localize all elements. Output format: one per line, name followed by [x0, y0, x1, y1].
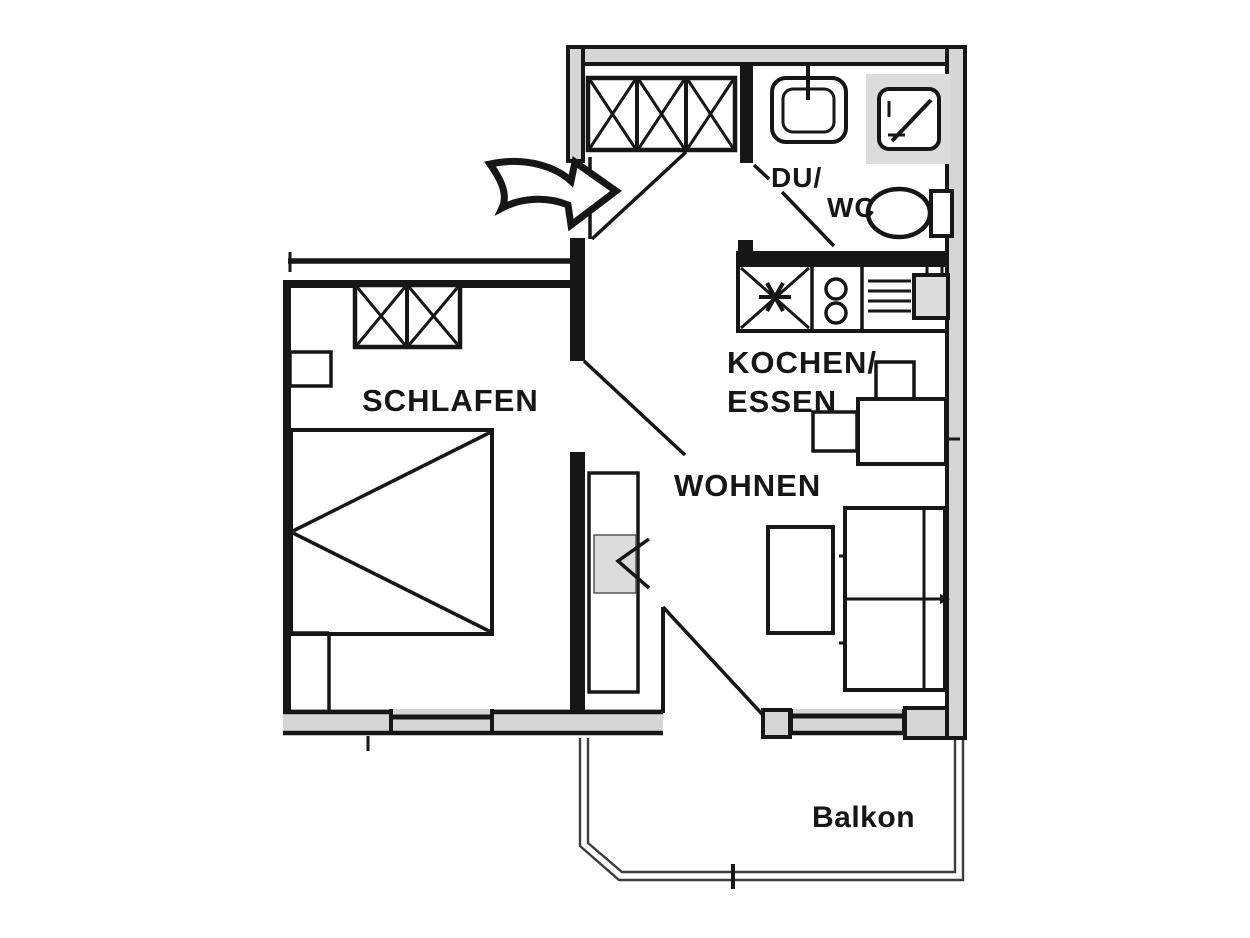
kitchen-label-line1: KOCHEN/ [727, 345, 877, 380]
living-room-label: WOHNEN [674, 468, 821, 503]
hall-wardrobe [588, 78, 735, 150]
sink-basin [914, 275, 948, 318]
bathroom-label-line1: DU/ [771, 162, 822, 193]
kitchen-counter [738, 265, 948, 331]
bedroom-dresser [291, 633, 329, 710]
dining-chair [876, 362, 914, 399]
balcony-door [663, 607, 762, 714]
balcony-door-post [763, 710, 790, 737]
washbasin-icon [772, 62, 846, 142]
dining-table [858, 399, 946, 464]
tv-screen [594, 535, 636, 593]
upper-left-wall [568, 47, 583, 161]
bathroom-label-line2: WC [827, 192, 876, 223]
divider-wall-lower [570, 452, 585, 711]
tv-sideboard [589, 473, 649, 692]
toilet-icon [868, 189, 952, 237]
bedroom-label: SCHLAFEN [362, 383, 539, 418]
top-wall [568, 47, 964, 64]
bedroom-wardrobe [355, 285, 460, 347]
nightstand [290, 352, 331, 386]
kitchen-label-line2: ESSEN [727, 384, 837, 419]
entry-arrow-icon [490, 161, 616, 225]
sofa-icon [839, 508, 950, 690]
bathroom-kitchen-wall [736, 251, 948, 263]
bottom-exterior-wall [283, 708, 964, 751]
balcony-label: Balkon [812, 801, 915, 834]
floor-plan-drawing: SCHLAFEN WOHNEN KOCHEN/ ESSEN DU/ WC Bal… [0, 0, 1250, 938]
bedroom-door-swing [584, 361, 685, 455]
coffee-table [768, 527, 833, 633]
divider-wall-upper [570, 238, 585, 361]
bed-icon [291, 430, 492, 634]
floor-plan: SCHLAFEN WOHNEN KOCHEN/ ESSEN DU/ WC Bal… [0, 0, 1250, 938]
shower-icon [866, 74, 950, 164]
bathroom-left-wall [740, 62, 753, 163]
